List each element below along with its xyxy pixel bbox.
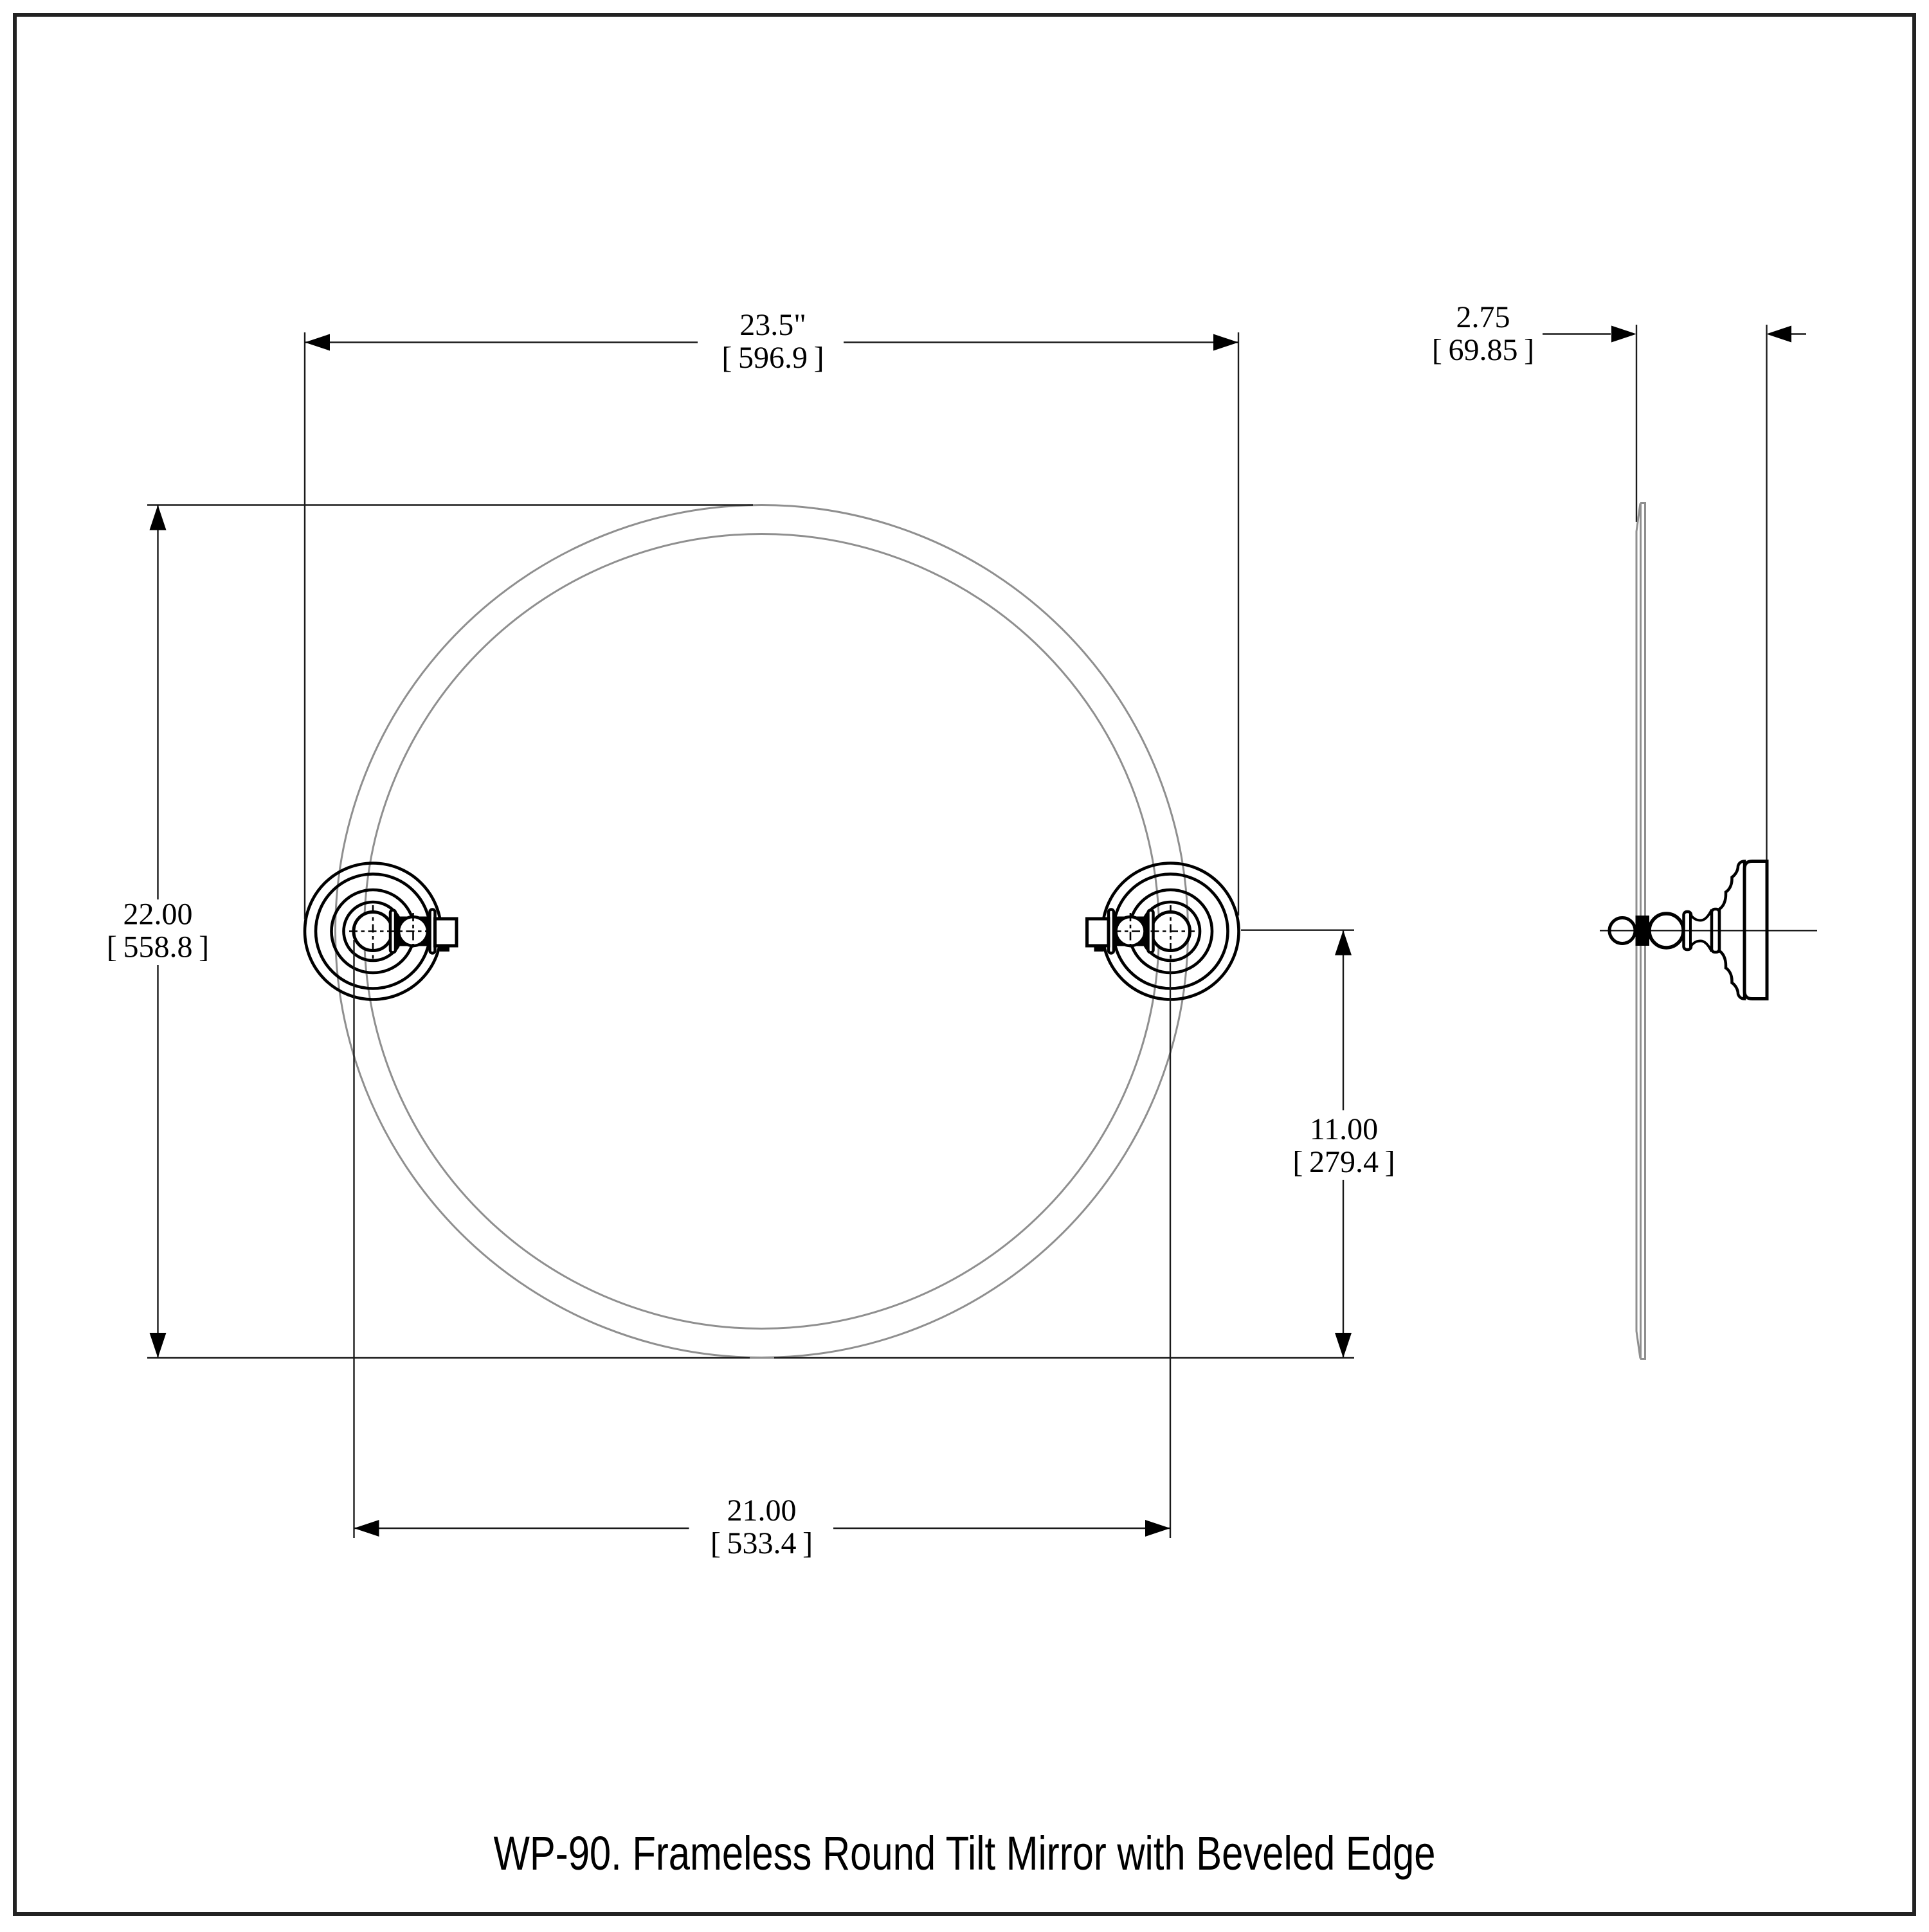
svg-text:[ 533.4 ]: [ 533.4 ] bbox=[711, 1526, 813, 1560]
svg-text:WP-90. Frameless Round Tilt Mi: WP-90. Frameless Round Tilt Mirror with … bbox=[494, 1827, 1436, 1880]
svg-text:2.75: 2.75 bbox=[1456, 300, 1510, 334]
svg-text:[ 69.85 ]: [ 69.85 ] bbox=[1432, 333, 1534, 367]
svg-text:23.5": 23.5" bbox=[739, 308, 806, 342]
svg-text:[ 558.8 ]: [ 558.8 ] bbox=[107, 930, 209, 964]
svg-text:11.00: 11.00 bbox=[1310, 1112, 1378, 1146]
svg-text:[ 279.4 ]: [ 279.4 ] bbox=[1292, 1145, 1395, 1179]
svg-text:[ 596.9 ]: [ 596.9 ] bbox=[721, 341, 824, 375]
svg-text:22.00: 22.00 bbox=[123, 898, 193, 932]
svg-text:21.00: 21.00 bbox=[727, 1494, 797, 1528]
